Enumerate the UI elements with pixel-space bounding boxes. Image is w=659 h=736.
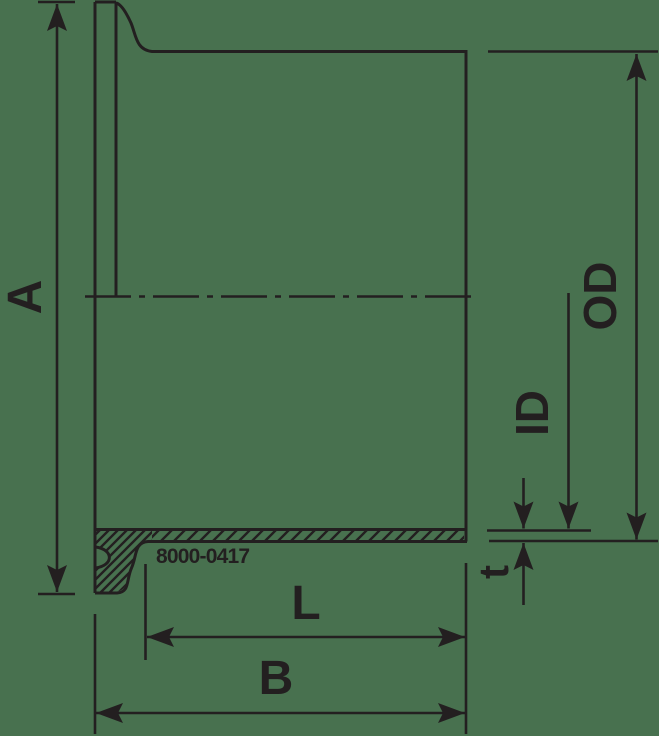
dim-label-id: ID [509,390,555,436]
dim-label-b: B [259,655,294,703]
dim-od [488,52,658,542]
technical-drawing-canvas: A OD ID t L B 8000-0417 [0,0,659,736]
section-hatch-band [152,531,464,540]
dim-label-od: OD [577,262,623,331]
part-number: 8000-0417 [156,546,249,567]
dim-label-t: t [473,565,515,579]
dim-label-a: A [2,280,50,315]
dim-label-l: L [291,580,320,628]
ferrule-line-drawing [0,0,659,736]
section-hatch-flange [96,531,153,592]
